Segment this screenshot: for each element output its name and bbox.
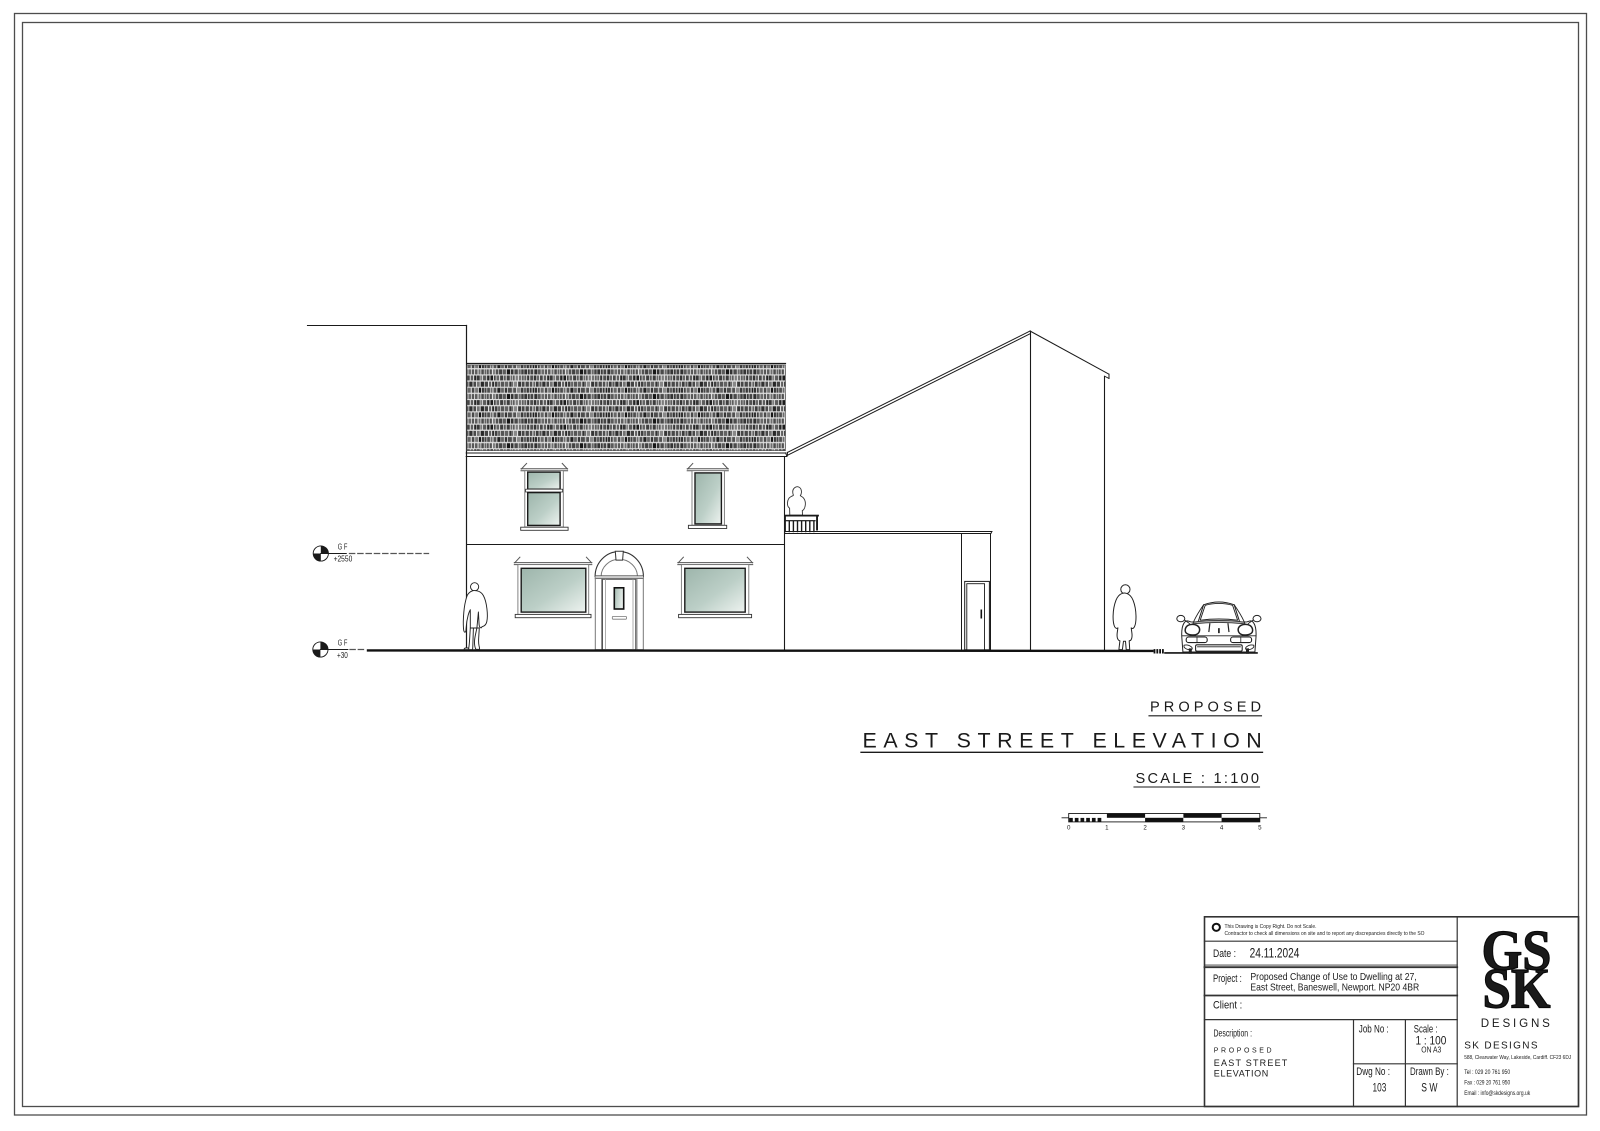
svg-text:G F: G F [338,543,348,552]
svg-text:PROPOSED: PROPOSED [1214,1048,1275,1055]
svg-text:EAST STREET: EAST STREET [1214,1058,1289,1068]
svg-text:Project :: Project : [1213,973,1242,985]
svg-text:2: 2 [1143,825,1147,832]
svg-text:Date :: Date : [1213,948,1236,960]
svg-text:0: 0 [1067,825,1071,832]
svg-text:Contractor to check all dimens: Contractor to check all dimensions on si… [1225,931,1425,937]
svg-text:Description :: Description : [1214,1028,1253,1039]
svg-text:+30: +30 [337,650,348,660]
svg-text:SCALE : 1:100: SCALE : 1:100 [1136,771,1262,787]
svg-text:Fax : 029 20 761 950: Fax : 029 20 761 950 [1464,1079,1510,1086]
svg-text:+2550: +2550 [334,554,353,564]
svg-text:SK DESIGNS: SK DESIGNS [1464,1041,1540,1052]
svg-text:This Drawing is Copy Right. D: This Drawing is Copy Right. Do not Scale… [1225,924,1317,930]
svg-text:ELEVATION: ELEVATION [1214,1069,1270,1079]
svg-text:Drawn By :: Drawn By : [1410,1066,1449,1078]
svg-text:1: 1 [1105,825,1109,832]
svg-text:103: 103 [1373,1080,1387,1094]
svg-text:PROPOSED: PROPOSED [1150,700,1265,716]
svg-text:Dwg No :: Dwg No : [1356,1066,1390,1078]
svg-text:24.11.2024: 24.11.2024 [1250,946,1300,961]
svg-text:Email : info@skdesigns.org.uk: Email : info@skdesigns.org.uk [1464,1090,1531,1097]
svg-text:Proposed Change of Use to Dwel: Proposed Change of Use to Dwelling at 27… [1250,972,1416,983]
svg-text:588, Clearwater Way, Lakeside,: 588, Clearwater Way, Lakeside, Cardiff. … [1464,1055,1571,1061]
svg-text:East Street, Baneswell, Newpor: East Street, Baneswell, Newport. NP20 4B… [1250,983,1419,994]
svg-text:ON A3: ON A3 [1421,1046,1441,1055]
svg-text:DESIGNS: DESIGNS [1481,1017,1555,1030]
svg-text:3: 3 [1182,825,1186,832]
svg-text:G F: G F [338,639,348,648]
svg-text:5: 5 [1258,825,1262,832]
svg-text:4: 4 [1220,825,1224,832]
svg-text:S W: S W [1421,1080,1438,1094]
svg-text:EAST STREET ELEVATION: EAST STREET ELEVATION [863,729,1269,753]
svg-text:Client :: Client : [1213,1000,1242,1012]
svg-text:Job No :: Job No : [1359,1024,1389,1036]
svg-text:Tel : 029 20 761 950: Tel : 029 20 761 950 [1464,1069,1510,1076]
svg-text:SK: SK [1483,958,1551,1021]
